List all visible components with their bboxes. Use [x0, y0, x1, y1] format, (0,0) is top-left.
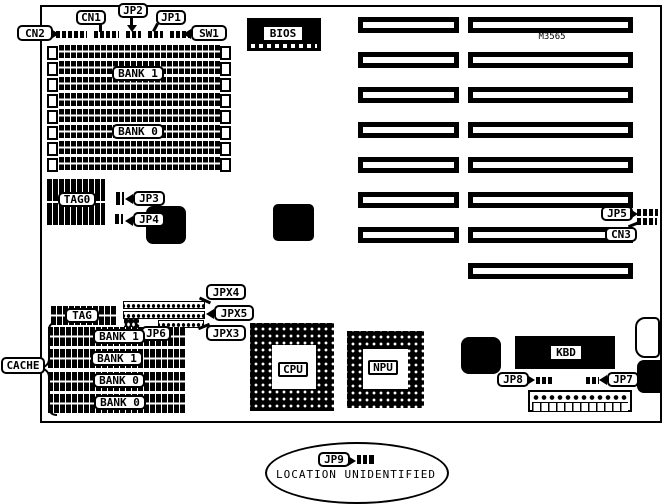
isa-slot-long: [468, 87, 633, 103]
jp5-connector: [637, 209, 658, 216]
pointer-line: [99, 24, 102, 32]
isa-slot-long: [468, 157, 633, 173]
simm-socket: [58, 93, 220, 106]
keyboard-port: [637, 360, 660, 393]
arrow-left-icon: [206, 309, 214, 319]
cn3-connector: [637, 218, 657, 225]
bios-pins: [251, 44, 317, 48]
cache-group-label: CACHE: [1, 357, 45, 374]
jp4-jumper: [115, 214, 123, 224]
arrow-right-icon: [348, 456, 356, 466]
jp5-label: JP5: [601, 206, 633, 221]
cn1-connector: [94, 31, 119, 38]
jp7-connector: [586, 377, 599, 384]
bios-label: BIOS: [263, 26, 303, 41]
chip: [461, 337, 501, 374]
kbd-label: KBD: [550, 345, 582, 360]
isa-slot-long: [468, 263, 633, 279]
jpx3-label: JPX3: [206, 325, 246, 341]
jpx5-label: JPX5: [214, 305, 254, 321]
keyboard-din-connector: [635, 317, 660, 358]
isa-slot-short: [358, 192, 459, 208]
cache-bank-label: BANK 1: [91, 351, 143, 366]
jp3-label: JP3: [133, 191, 165, 206]
jp2-label: JP2: [118, 3, 148, 18]
simm-socket: [58, 141, 220, 154]
npu-label: NPU: [368, 360, 398, 375]
cn3-label: CN3: [605, 227, 637, 242]
sw1-label: SW1: [191, 25, 227, 41]
jp9-connector: [357, 455, 374, 464]
memory-bank0-label: BANK 0: [112, 124, 164, 139]
arrow-left-icon: [183, 29, 191, 39]
cn2-connector: [56, 31, 87, 38]
cache-bank-label: BANK 0: [94, 395, 146, 410]
jp4-label: JP4: [133, 212, 165, 227]
arrow-right-icon: [51, 29, 59, 39]
jp3-jumper: [116, 192, 124, 205]
cn1-label: CN1: [76, 10, 106, 25]
cache-tag-label: TAG: [65, 308, 99, 323]
arrow-left-icon: [125, 216, 133, 226]
simm-socket: [58, 109, 220, 122]
cache-bank-label: BANK 0: [93, 373, 145, 388]
jpx4-label: JPX4: [206, 284, 246, 300]
jp8-connector: [536, 377, 552, 384]
arrow-left-icon: [125, 194, 133, 204]
jp7-label: JP7: [607, 372, 639, 387]
isa-slot-short: [358, 87, 459, 103]
chip: [273, 204, 314, 241]
simm-socket: [58, 157, 220, 170]
jp1-label: JP1: [156, 10, 186, 25]
arrow-left-icon: [599, 375, 607, 385]
isa-slot-long: [468, 52, 633, 68]
tag0-label: TAG0: [58, 192, 96, 207]
isa-slot-short: [358, 157, 459, 173]
arrow-right-icon: [630, 209, 638, 219]
jp9-label: JP9: [318, 452, 350, 467]
cpu-label: CPU: [278, 362, 308, 377]
cache-bank-label: BANK 1: [93, 329, 145, 344]
note-text: LOCATION UNIDENTIFIED: [272, 469, 440, 480]
simm-socket: [58, 45, 220, 58]
isa-slot-short: [358, 52, 459, 68]
arrow-right-icon: [527, 375, 535, 385]
cn2-label: CN2: [17, 25, 53, 41]
jp6-label: JP6: [141, 326, 171, 341]
isa-slot-short: [358, 17, 459, 33]
power-pins-square: [532, 402, 628, 411]
jpx4-header: [123, 301, 205, 309]
isa-slot-short: [358, 122, 459, 138]
power-connector: [528, 390, 632, 412]
power-pins-round: [532, 393, 628, 402]
memory-bank1-label: BANK 1: [112, 66, 164, 81]
jp1-connector: [148, 31, 163, 38]
chipset-model-label: M3565: [517, 33, 587, 42]
isa-slot-short: [358, 227, 459, 243]
jpx5-header: [123, 311, 205, 319]
jp8-label: JP8: [497, 372, 529, 387]
motherboard-diagram: CN2 CN1 JP2 JP1 SW1 BANK 1 BANK 0 TAG0 J…: [0, 0, 664, 504]
isa-slot-long: [468, 17, 633, 33]
isa-slot-long: [468, 122, 633, 138]
jp2-connector: [126, 31, 141, 38]
arrow-down-icon: [127, 25, 137, 32]
